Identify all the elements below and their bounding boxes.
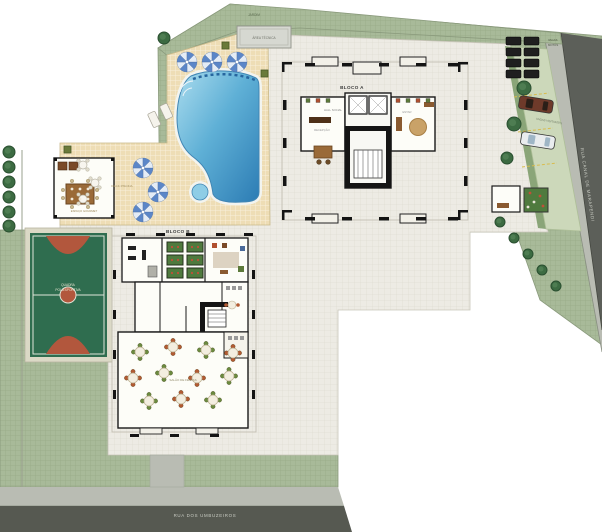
flower [197, 246, 199, 248]
planter-bed [167, 268, 183, 278]
tree-crown [519, 83, 526, 90]
moto-stall [506, 37, 521, 45]
motos-label-1: VAGAS [548, 38, 558, 42]
court-label-2: POLIESPORTIVA [55, 288, 81, 292]
chair [77, 202, 81, 206]
flower [177, 259, 179, 261]
counter [234, 336, 238, 340]
plate [79, 198, 82, 201]
counter [228, 336, 232, 340]
entry-path [150, 455, 184, 487]
flower [191, 259, 193, 261]
column-mark [448, 63, 458, 67]
site-plan-svg: BLOCO A BLOCO B RUA DOS UMBUZEIROS RUA C… [0, 0, 602, 532]
chair [77, 159, 81, 163]
chair [224, 303, 228, 307]
plate [71, 198, 74, 201]
reception-room [301, 97, 345, 151]
umbrella-pole [185, 60, 188, 63]
tree-crown [160, 34, 166, 40]
flower [539, 195, 542, 198]
tree-crown [525, 251, 530, 256]
column-mark [252, 310, 255, 319]
planter-bed [187, 268, 203, 278]
umbrella-pole [141, 166, 144, 169]
estar-label: ESTAR [402, 110, 411, 114]
flower [197, 259, 199, 261]
flower [171, 272, 173, 274]
moto-stall [524, 70, 539, 78]
chair [86, 202, 90, 206]
planter-mini [406, 99, 410, 103]
balcony-stub [140, 428, 162, 434]
gym-equipment [142, 250, 146, 260]
column-mark [156, 233, 165, 236]
hall-a-label: HALL SOCIAL [324, 108, 342, 112]
planter-box [222, 42, 229, 49]
column-mark [283, 138, 287, 148]
plate [87, 188, 90, 191]
corner-mark [54, 158, 57, 161]
stool [95, 188, 99, 192]
umbrella-pole [156, 190, 159, 193]
chair [236, 303, 240, 307]
column-mark [130, 434, 139, 437]
gatehouse-walls [492, 186, 520, 212]
chair [77, 168, 81, 172]
chair [86, 193, 90, 197]
column-mark [216, 233, 225, 236]
stairs [208, 310, 226, 327]
car-window [527, 134, 535, 144]
core-wall [345, 183, 391, 188]
tree-crown [5, 148, 11, 154]
tree-crown [5, 163, 11, 169]
chair [98, 177, 102, 181]
chair [86, 159, 90, 163]
stool [86, 179, 90, 183]
corner-mark [458, 210, 461, 220]
flower [527, 206, 530, 209]
column-mark [416, 217, 426, 221]
tree-crown [5, 222, 11, 228]
sidewalk-bottom [0, 487, 344, 506]
column-mark [464, 138, 468, 148]
stool [70, 179, 74, 183]
core-wall [386, 131, 391, 188]
street-bottom-label: RUA DOS UMBUZEIROS [174, 513, 237, 518]
reception-label: RECEPÇÃO [314, 127, 331, 132]
moto-stall [524, 48, 539, 56]
banquet-table [144, 396, 154, 406]
column-mark [113, 390, 116, 399]
sofa [424, 102, 434, 107]
tree-crown [5, 208, 11, 214]
column-mark [305, 63, 315, 67]
tech-label: ÁREA TÉCNICA [252, 35, 276, 40]
column-mark [416, 63, 426, 67]
car-window [525, 98, 533, 108]
column-mark [379, 217, 389, 221]
column-mark [448, 217, 458, 221]
counter [238, 286, 242, 290]
tree-crown [553, 283, 558, 288]
corner-mark [282, 210, 285, 220]
copa-table [228, 301, 236, 309]
plate [87, 198, 90, 201]
road-bottom [0, 506, 352, 532]
banquet-table [208, 395, 218, 405]
planter-mini [416, 99, 420, 103]
column-mark [283, 100, 287, 110]
tree-crown [5, 193, 11, 199]
reception-desk [309, 117, 331, 123]
furniture [222, 243, 227, 248]
corner-mark [458, 62, 461, 72]
planter-bed [167, 255, 183, 265]
moto-stall [524, 59, 539, 67]
court-label-1: QUADRA [61, 283, 76, 287]
column-mark [305, 217, 315, 221]
planter-mini [396, 99, 400, 103]
gatehouse-desk [497, 203, 509, 208]
tree-crown [509, 119, 516, 126]
column-mark [252, 270, 255, 279]
planter-box [261, 70, 268, 77]
planter-box [64, 146, 71, 153]
moto-stall [506, 70, 521, 78]
balcony-stub [312, 214, 338, 223]
flower [197, 272, 199, 274]
banquet-table [159, 368, 169, 378]
column-mark [210, 434, 219, 437]
column-mark [126, 233, 135, 236]
garden-label: JARDIM [248, 13, 260, 17]
planter-mini [316, 99, 320, 103]
umbrella-pole [210, 60, 213, 63]
tree-crown [503, 154, 509, 160]
column-mark [252, 350, 255, 359]
counter [58, 162, 67, 170]
corner-mark [111, 215, 114, 218]
core-wall [345, 131, 350, 188]
flower [191, 272, 193, 274]
furniture [240, 246, 245, 251]
sports-court [25, 228, 112, 362]
balcony-stub [312, 57, 338, 66]
spa-water [192, 184, 208, 200]
corner-mark [282, 62, 285, 72]
column-mark [252, 390, 255, 399]
moto-stall [506, 48, 521, 56]
moto-stall [506, 59, 521, 67]
flower [177, 246, 179, 248]
gourmet-label: ESPAÇO GOURMET [71, 209, 98, 213]
column-mark [113, 270, 116, 279]
flower [171, 259, 173, 261]
furniture [220, 270, 228, 274]
tree-crown [5, 178, 11, 184]
gym-equipment [128, 256, 136, 260]
flower [191, 246, 193, 248]
moto-stall [524, 37, 539, 45]
bloco-a-label: BLOCO A [340, 85, 364, 90]
column-mark [244, 233, 253, 236]
banquet-table [128, 373, 138, 383]
deck-label: DECK PISCINA [111, 184, 132, 188]
plate [79, 188, 82, 191]
core-wall [200, 307, 205, 332]
plate [71, 188, 74, 191]
umbrella-pole [141, 210, 144, 213]
entry-stub [353, 62, 381, 74]
bloco-b-label: BLOCO B [166, 229, 190, 234]
banquet-table [201, 345, 211, 355]
gatehouse [492, 186, 548, 212]
planter-mini [306, 99, 310, 103]
column-mark [379, 63, 389, 67]
furniture [238, 266, 244, 272]
column-mark [113, 310, 116, 319]
banquet-table [224, 371, 234, 381]
chair [326, 160, 331, 165]
building-bloco-b [112, 236, 256, 434]
counter [232, 286, 236, 290]
banquet-table [228, 348, 238, 358]
planter-bed [187, 255, 203, 265]
column-mark [170, 434, 179, 437]
motos-label-2: MOTOS [548, 43, 558, 47]
banquet-table [176, 394, 186, 404]
planter-mini [326, 99, 330, 103]
table [314, 146, 332, 158]
core-wall [345, 126, 391, 131]
flower [533, 201, 536, 204]
stool [61, 196, 65, 200]
planter-bed [187, 242, 203, 252]
flower [171, 246, 173, 248]
stool [95, 196, 99, 200]
column-mark [342, 63, 352, 67]
banquet-table [135, 347, 145, 357]
chair [86, 168, 90, 172]
column-mark [113, 350, 116, 359]
planter-mini [426, 99, 430, 103]
corner-mark [54, 215, 57, 218]
banquet-table [168, 342, 178, 352]
rug [213, 252, 239, 268]
stool [61, 188, 65, 192]
corner-mark [111, 158, 114, 161]
core-wall [200, 302, 228, 307]
site-plan-canvas: BLOCO A BLOCO B RUA DOS UMBUZEIROS RUA C… [0, 0, 602, 532]
cafe-table [91, 179, 99, 187]
gym-equipment [128, 246, 136, 250]
cafe-table [79, 161, 87, 169]
furniture [212, 243, 217, 248]
garden-bed [524, 188, 548, 212]
chair [317, 160, 322, 165]
balcony-stub [196, 428, 218, 434]
tree-crown [539, 267, 544, 272]
sofa [396, 117, 402, 131]
column-mark [342, 217, 352, 221]
planter-bed [167, 242, 183, 252]
flower [177, 272, 179, 274]
counter [240, 336, 244, 340]
column-mark [464, 100, 468, 110]
tree-crown [511, 235, 516, 240]
counter [226, 286, 230, 290]
tree-crown [497, 219, 502, 224]
flower [542, 205, 545, 208]
party-hall-label: SALÃO DE FESTAS [169, 377, 196, 382]
umbrella-pole [235, 60, 238, 63]
gym-bench [148, 266, 157, 277]
column-mark [283, 176, 287, 186]
flower [529, 192, 532, 195]
column-mark [464, 176, 468, 186]
round-rug [410, 119, 427, 136]
chair [77, 193, 81, 197]
